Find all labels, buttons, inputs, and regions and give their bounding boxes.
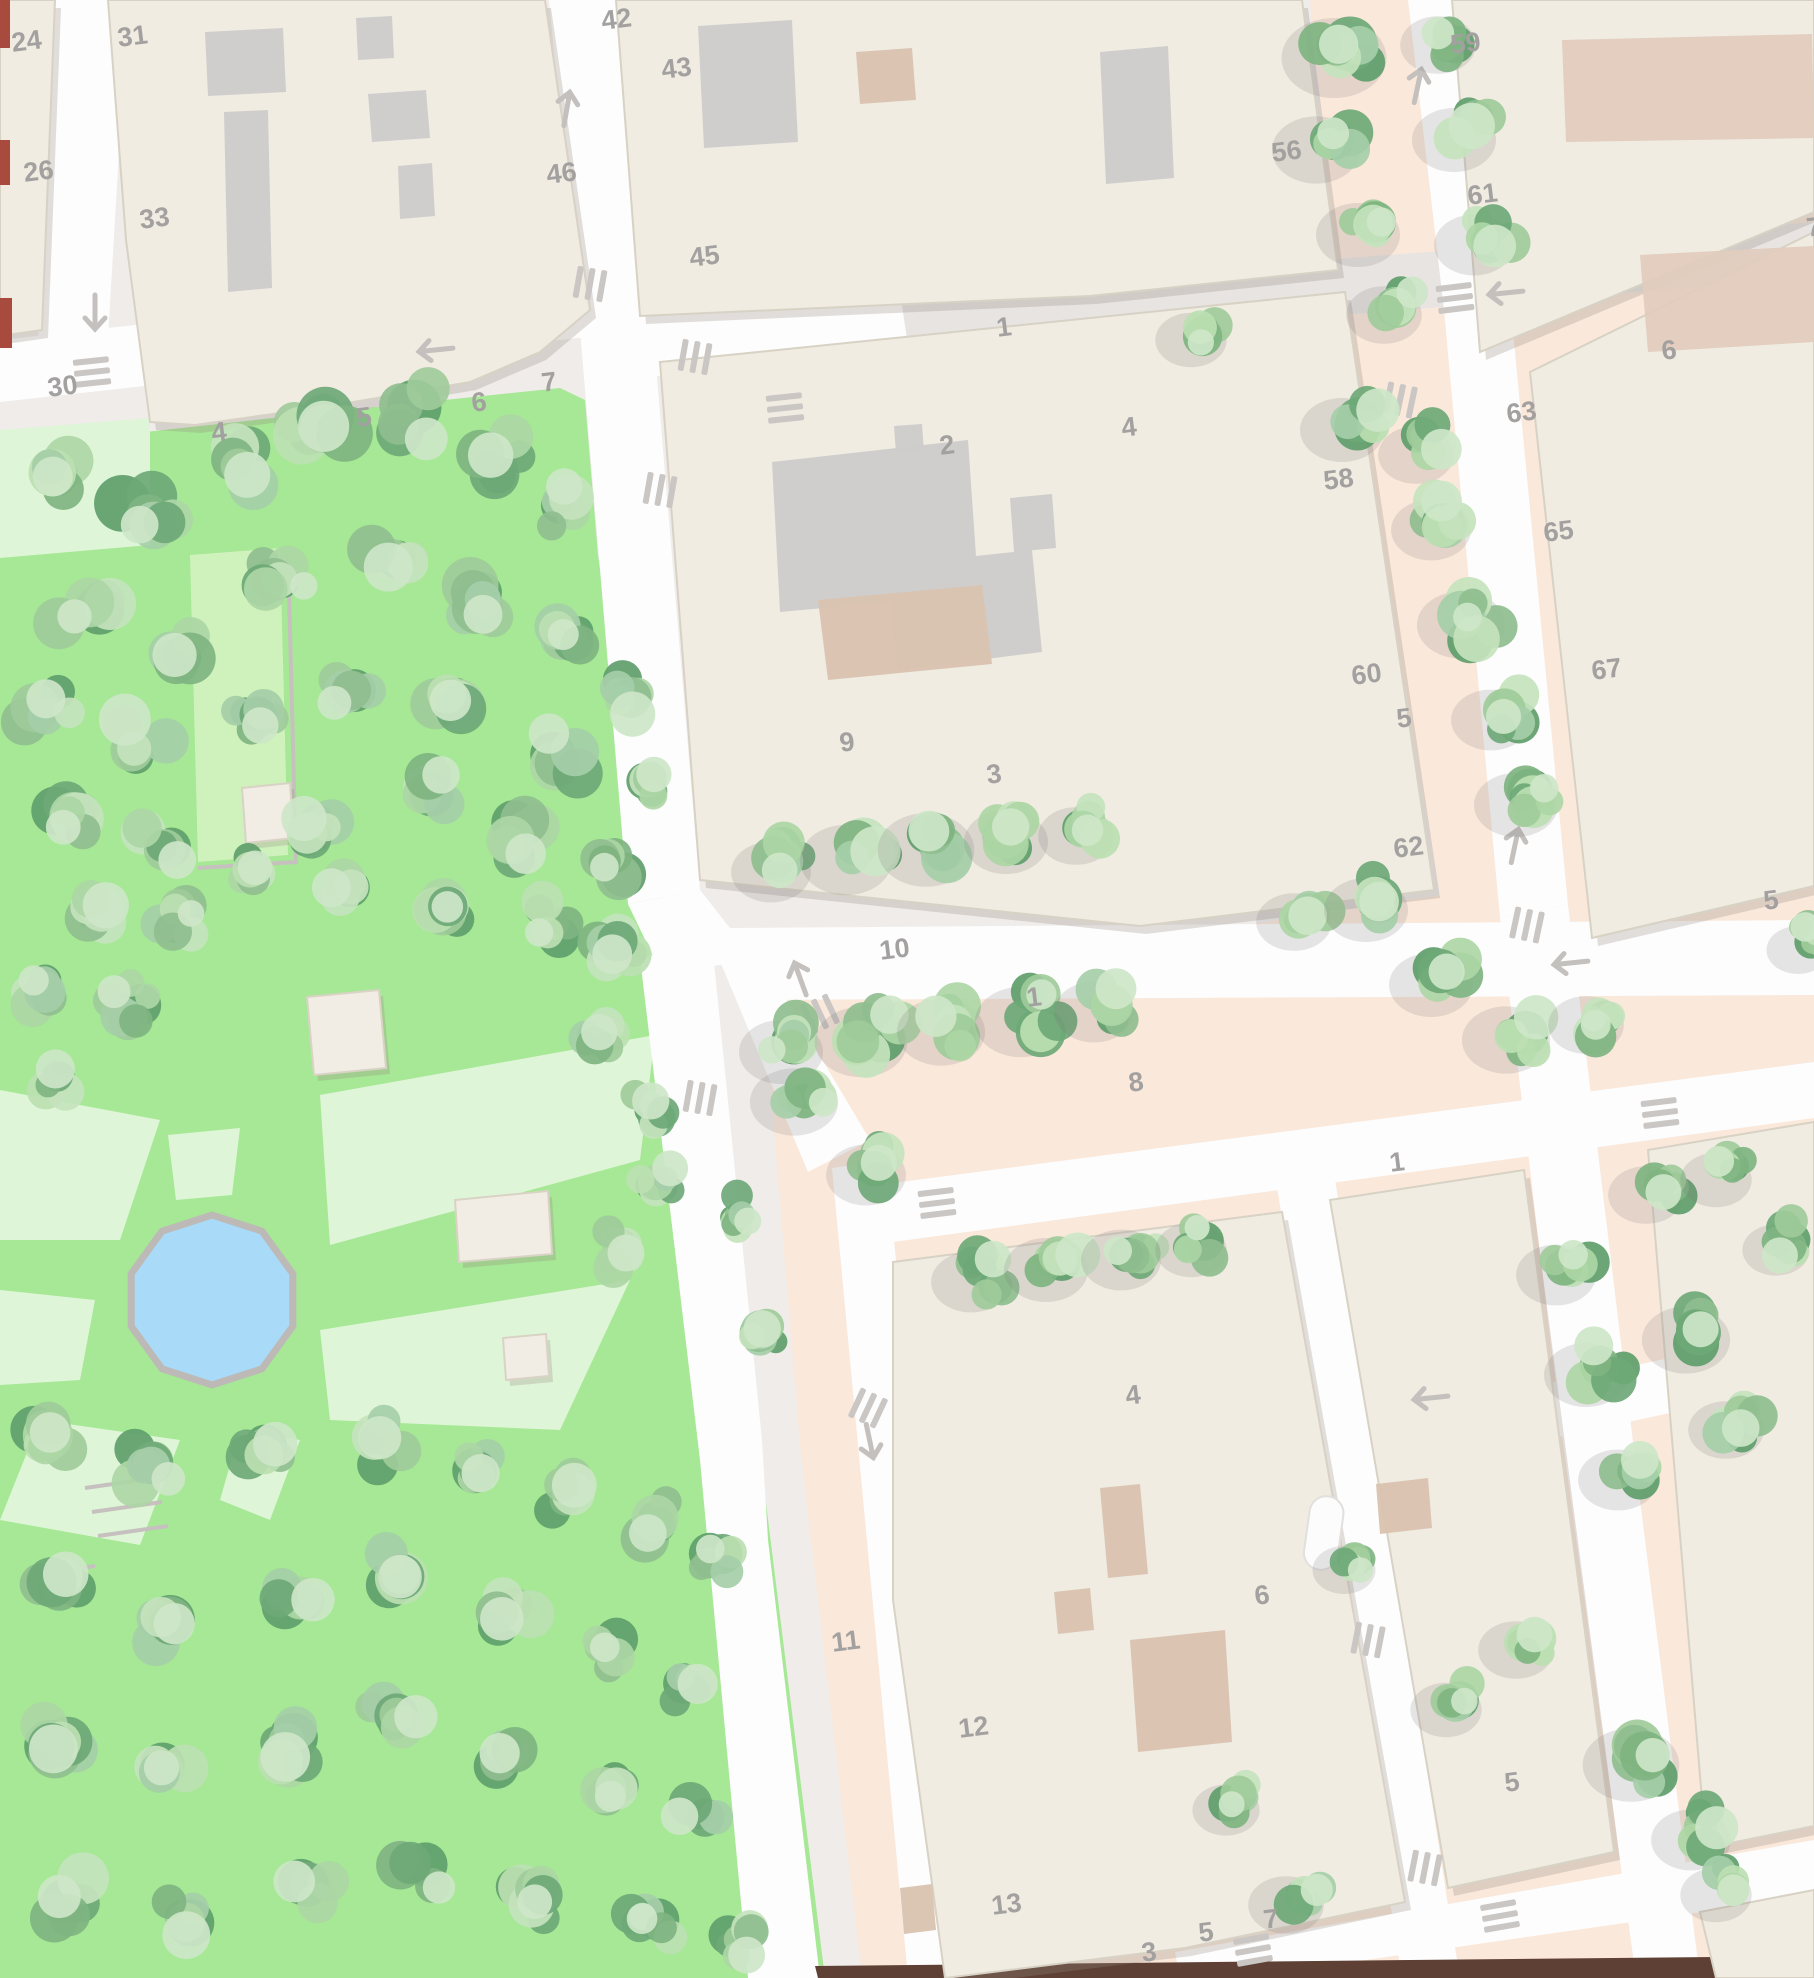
crosswalk-marks (1407, 1849, 1443, 1886)
tree-blob (1356, 388, 1399, 431)
tree-blob (364, 543, 413, 592)
tree-blob (422, 756, 460, 794)
courtyard (398, 163, 435, 219)
courtyard (1100, 46, 1174, 184)
tree-blob (358, 1416, 401, 1459)
tree-blob (1319, 25, 1358, 64)
house-number-label: 33 (138, 201, 171, 234)
house-number-label: 58 (1322, 462, 1355, 495)
tree-blob (19, 965, 49, 995)
tree-blob (728, 1937, 765, 1974)
tree-blob (281, 796, 326, 841)
lawn-patch (0, 1290, 95, 1385)
tree-blob (972, 1279, 1002, 1309)
tree-blob (1421, 429, 1462, 470)
tree-blob (1695, 1806, 1738, 1849)
courtyard (894, 424, 924, 454)
tree-blob (627, 1903, 658, 1934)
tree-blob (517, 1884, 552, 1919)
tree-blob (1517, 1617, 1553, 1653)
house-number-label: 59 (1449, 26, 1482, 59)
house-number-label: 45 (688, 239, 721, 272)
tree-blob (29, 1724, 78, 1773)
tree-blob (57, 599, 91, 633)
tree-blob (468, 432, 513, 477)
tree-blob (273, 1861, 315, 1903)
tree-blob (394, 1695, 437, 1738)
tree-blob (290, 572, 318, 600)
tree-blob (33, 457, 73, 497)
house-number-label: 26 (22, 154, 55, 187)
tree-blob (152, 633, 196, 677)
tree-blob (734, 1208, 761, 1235)
tree-blob (1703, 1146, 1734, 1177)
tree-blob (607, 1234, 644, 1271)
tree-blob (758, 1036, 785, 1063)
tree-blob (1188, 329, 1214, 355)
tree-blob (581, 1014, 617, 1050)
tree-blob (944, 1030, 976, 1062)
courtyard (1130, 1630, 1232, 1752)
tree-blob (590, 1632, 620, 1662)
tree-blob (83, 882, 129, 928)
tree-blob (291, 1578, 334, 1621)
tree-blob (652, 1150, 688, 1186)
tree-blob (1558, 1240, 1587, 1269)
tree-blob (38, 1875, 81, 1918)
tree-blob (632, 1082, 669, 1119)
tree-blob (1317, 117, 1349, 149)
tree-blob (461, 1454, 499, 1492)
tree-blob (1621, 1441, 1659, 1479)
tree-blob (405, 417, 448, 460)
tree-blob (678, 1664, 718, 1704)
pond (131, 1215, 293, 1385)
crosswalk-marks (1350, 1621, 1386, 1658)
tree-blob (809, 1088, 838, 1117)
courtyard (856, 48, 916, 104)
tree-blob (238, 851, 273, 886)
house-number-label: 56 (1270, 134, 1303, 167)
lawn-patch (168, 1128, 240, 1200)
tree-blob (1348, 1557, 1373, 1582)
tree-blob (744, 1310, 781, 1347)
house-number-label: 60 (1350, 657, 1383, 690)
tree-blob (464, 595, 503, 634)
tree-blob (1103, 1236, 1132, 1265)
courtyard (1100, 1484, 1148, 1578)
tree-blob (430, 680, 471, 721)
tree-blob (1429, 954, 1465, 990)
tree-blob (36, 1049, 75, 1088)
tree-blob (1774, 1204, 1807, 1237)
tree-blob (1072, 815, 1103, 846)
courtyard (900, 1884, 936, 1934)
tree-blob (312, 868, 351, 907)
house-number-label: 10 (878, 932, 911, 965)
tree-blob (99, 694, 151, 746)
tree-blob (158, 841, 196, 879)
park-pavilion (455, 1191, 552, 1262)
tree-blob (1367, 207, 1396, 236)
house-number-label: 43 (660, 51, 693, 84)
tree-blob (1451, 1688, 1478, 1715)
crosswalk-marks (677, 339, 712, 376)
tree-blob (529, 713, 569, 753)
tree-blob (298, 401, 349, 452)
tree-blob (1574, 1326, 1613, 1365)
park-pavilion (307, 990, 386, 1075)
tree-blob (407, 367, 450, 410)
tree-blob (592, 934, 632, 974)
tree-blob (30, 1412, 71, 1453)
tree-blob (1359, 882, 1399, 922)
tree-blob (1219, 1791, 1245, 1817)
map-canvas[interactable]: 2426303133424346454567124565859606162636… (0, 0, 1814, 1978)
crosswalk-marks (682, 1080, 717, 1117)
house-number-label: 12 (957, 1710, 990, 1743)
tree-blob (1396, 277, 1428, 309)
tree-blob (1581, 1010, 1611, 1040)
tree-blob (537, 511, 566, 540)
tree-blob (121, 506, 159, 544)
courtyard (818, 585, 992, 680)
tree-blob (548, 619, 579, 650)
tree-blob (98, 975, 131, 1008)
courtyard (368, 90, 430, 142)
tree-blob (552, 1463, 597, 1508)
tree-blob (480, 1597, 524, 1641)
courtyard (356, 16, 394, 60)
tree-blob (661, 1797, 699, 1835)
tree-blob (521, 881, 563, 923)
tree-blob (992, 808, 1029, 845)
tree-blob (43, 1551, 88, 1596)
tree-blob (1722, 1409, 1760, 1447)
courtyard (224, 110, 272, 292)
tree-blob (1301, 1874, 1333, 1906)
house-number-label: 62 (1392, 830, 1425, 863)
courtyard (205, 28, 286, 96)
crosswalk-marks (73, 356, 112, 388)
tree-blob (253, 1422, 298, 1467)
house-number-label: 61 (1466, 177, 1499, 210)
crosswalk-marks (1435, 282, 1474, 314)
house-number-label: 24 (10, 24, 43, 57)
courtyard (1054, 1588, 1094, 1634)
tree-blob (1288, 896, 1327, 935)
house-number-label: 67 (1590, 652, 1623, 685)
tree-blob (1473, 225, 1516, 268)
tree-blob (1449, 103, 1495, 149)
tree-canopy (134, 1742, 208, 1792)
crosswalk-marks (642, 472, 677, 509)
house-number-label: 42 (600, 2, 633, 35)
crosswalk-marks (917, 1187, 956, 1219)
house-number-label: 30 (46, 369, 79, 402)
red-building-mark (0, 298, 12, 348)
tree-canopy (65, 880, 129, 944)
building-footprint (108, 0, 590, 425)
tree-blob (480, 1733, 520, 1773)
tree-blob (837, 1020, 880, 1063)
tree-blob (1486, 699, 1521, 734)
park-pavilion (503, 1334, 549, 1380)
map-render-surface: 2426303133424346454567124565859606162636… (0, 0, 1814, 1978)
tree-blob (1683, 1311, 1719, 1347)
tree-blob (46, 810, 81, 845)
tree-blob (595, 1781, 626, 1812)
tree-blob (162, 1911, 210, 1959)
tree-blob (242, 707, 278, 743)
courtyard (1010, 494, 1056, 552)
red-building-mark (0, 140, 10, 185)
tree-blob (119, 1004, 152, 1037)
tree-blob (525, 918, 553, 946)
tree-blob (629, 1514, 667, 1552)
tree-blob (1421, 481, 1462, 522)
crosswalk-marks (572, 266, 607, 303)
house-number-label: 31 (116, 19, 149, 52)
tree-blob (1096, 968, 1137, 1009)
tree-blob (636, 757, 671, 792)
tree-blob (1645, 1174, 1681, 1210)
tree-blob (590, 853, 619, 882)
tree-blob (915, 996, 956, 1037)
tree-blob (317, 686, 351, 720)
tree-blob (178, 900, 205, 927)
tree-blob (1530, 774, 1558, 802)
tree-blob (378, 1555, 422, 1599)
tree-blob (26, 679, 65, 718)
tree-blob (152, 1462, 186, 1496)
house-number-label: 13 (990, 1887, 1023, 1920)
courtyard (698, 20, 798, 148)
house-number-label: 65 (1542, 514, 1575, 547)
house-number-label: 46 (545, 156, 578, 189)
tree-blob (505, 833, 546, 874)
tree-blob (224, 452, 270, 498)
tree-blob (261, 1732, 311, 1782)
tree-blob (696, 1535, 725, 1564)
tree-blob (244, 567, 288, 611)
tree-blob (144, 1750, 179, 1785)
tree-blob (610, 691, 655, 736)
courtyard (1376, 1478, 1432, 1534)
tree-blob (1762, 1237, 1798, 1273)
tree-blob (1185, 1215, 1210, 1240)
tree-blob (861, 1145, 897, 1181)
tree-blob (389, 1842, 431, 1884)
tree-blob (626, 1165, 655, 1194)
tree-blob (1718, 1874, 1750, 1906)
tree-blob (546, 468, 583, 505)
tree-blob (423, 1871, 455, 1903)
tree-blob (1453, 603, 1482, 632)
tree-blob (154, 1603, 195, 1644)
house-number-label: 63 (1505, 395, 1538, 428)
tree-blob (1636, 1738, 1670, 1772)
tree-blob (908, 811, 949, 852)
house-number-label: 11 (830, 1625, 862, 1658)
courtyard (1562, 34, 1814, 142)
tree-blob (122, 809, 161, 848)
tree-blob (762, 852, 798, 888)
crosswalk-marks (1640, 1097, 1679, 1129)
red-building-mark (0, 0, 10, 48)
tree-blob (432, 891, 464, 923)
crosswalk-marks (766, 392, 805, 424)
